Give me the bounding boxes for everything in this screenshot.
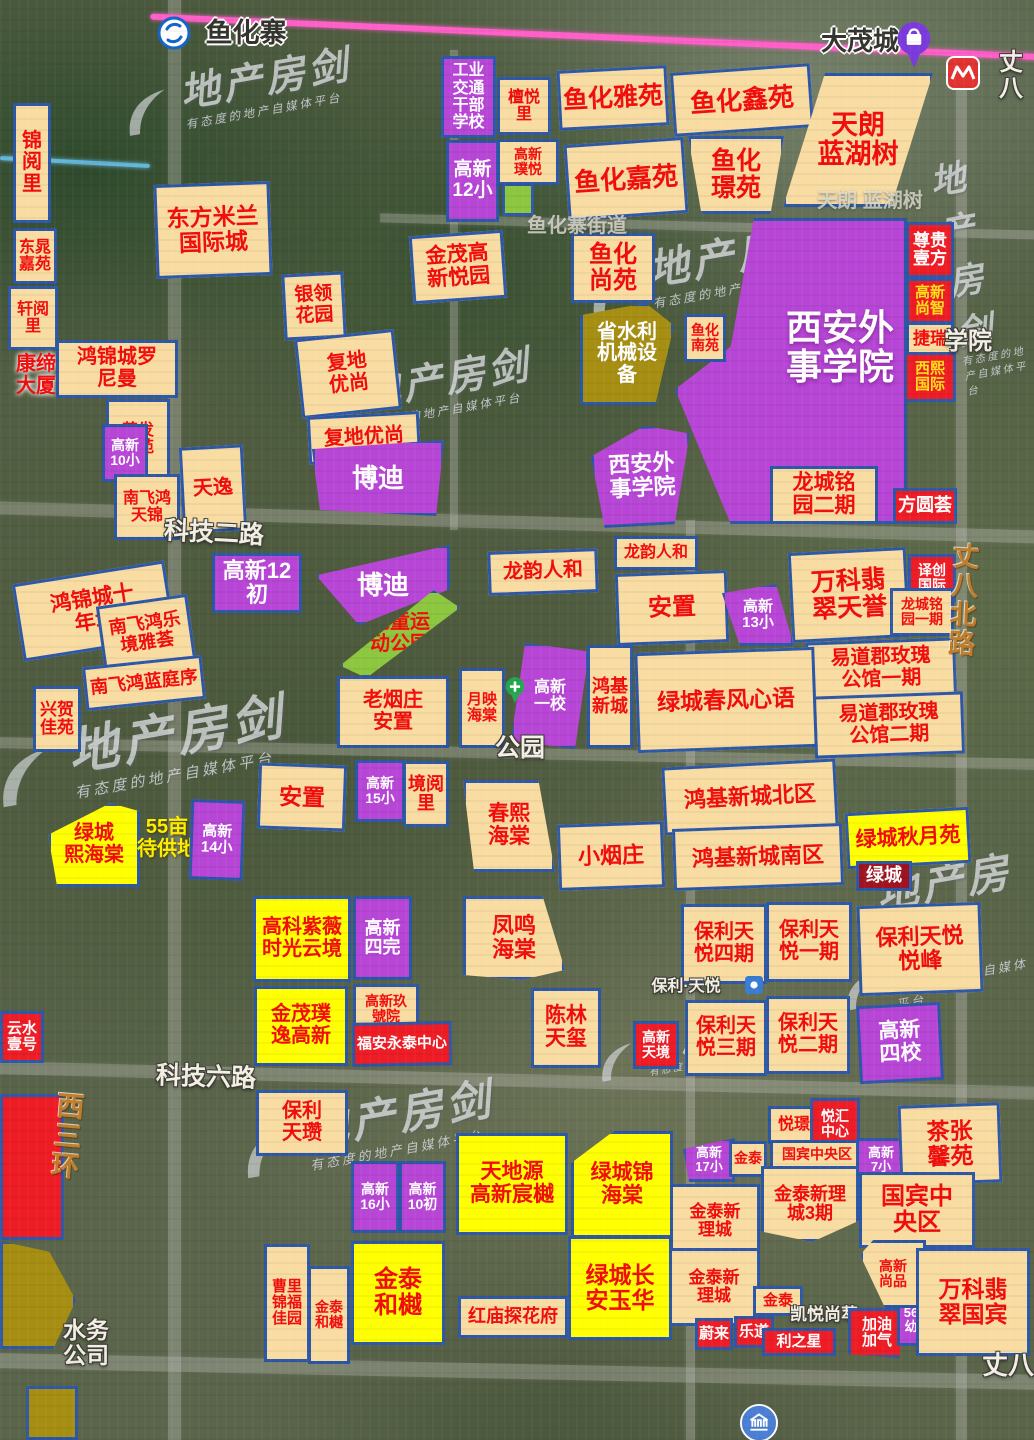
- label-text: 鱼化寨街道: [527, 216, 627, 238]
- label-text: 鱼化寨: [206, 19, 287, 48]
- map-parcel: 老烟庄 安置: [337, 676, 449, 748]
- map-parcel: 高新 15小: [355, 760, 405, 822]
- map-parcel: 鱼化 璟苑: [688, 136, 784, 214]
- map-label: 学院: [940, 328, 996, 356]
- map-parcel: 国宾中 央区: [859, 1172, 975, 1248]
- park-parcel: [502, 183, 534, 216]
- label-text: 高新 一校: [534, 679, 566, 714]
- map-parcel: 保利天 悦三期: [685, 1000, 767, 1076]
- label-text: 高新12初: [215, 559, 299, 607]
- label-text: 曹里 锦福 佳园: [272, 1279, 302, 1328]
- label-text: 金泰 和樾: [315, 1300, 343, 1330]
- label-text: 绿城春风心语: [657, 685, 796, 715]
- label-text: 凯悦尚萃: [790, 1306, 858, 1324]
- map-parcel: 金茂高 新悦园: [409, 230, 508, 304]
- map-parcel: 境阅 里: [403, 761, 449, 827]
- map-parcel: 绿城春风心语: [634, 647, 817, 753]
- label-text: 儿童运 动公园: [370, 612, 430, 655]
- map-parcel: 福安永泰中心: [352, 1021, 453, 1067]
- label-text: 鱼化 尚苑: [589, 242, 637, 294]
- label-text: 丈 八 北 路: [947, 542, 980, 660]
- map-parcel: 博迪: [312, 440, 444, 516]
- label-text: 鸿基新城北区: [683, 782, 816, 813]
- map-parcel: 高新 璞悦: [497, 139, 559, 185]
- label-text: 悦汇 中心: [821, 1109, 849, 1139]
- station-label: 鱼化寨: [196, 18, 296, 50]
- label-text: 南飞鸿乐 境雅荟: [108, 609, 185, 658]
- label-text: 高新 尚品: [879, 1259, 907, 1289]
- label-text: 金泰新理 城3期: [774, 1185, 846, 1224]
- label-text: 大茂城: [821, 27, 899, 55]
- map-parcel: 鸿基新城南区: [672, 823, 844, 891]
- map-parcel: 方圆荟: [893, 488, 957, 524]
- map-parcel: 金泰 和樾: [308, 1266, 350, 1364]
- map-parcel: 金泰新理 城3期: [761, 1166, 859, 1242]
- label-text: 绿城锦 海棠: [591, 1162, 654, 1207]
- label-text: 学院: [944, 329, 992, 355]
- label-text: 加油 加气: [862, 1317, 892, 1349]
- map-parcel: 龙韵人和: [487, 548, 598, 596]
- map-parcel: 鱼化鑫苑: [670, 63, 814, 137]
- map-parcel: 锦 阅 里: [13, 103, 51, 223]
- label-text: 万科翡 翠天誉: [810, 566, 888, 624]
- map-parcel: 保利天 悦四期: [681, 904, 767, 984]
- map-parcel: 高新 16小: [351, 1161, 399, 1233]
- map-parcel: 国宾中央区: [770, 1140, 864, 1170]
- street-label: 科技六路: [140, 1060, 273, 1095]
- map-parcel: 小烟庄: [557, 821, 665, 891]
- label-text: 高新 10小: [110, 438, 140, 468]
- label-text: 高新 15小: [365, 776, 395, 806]
- map-label: 西安外 事学院: [770, 300, 910, 395]
- label-text: 水务 公司: [63, 1318, 109, 1368]
- map-parcel: 高新 13小: [722, 584, 794, 646]
- label-text: 小烟庄: [578, 843, 645, 869]
- map-parcel: 鱼化 南苑: [684, 314, 726, 362]
- label-text: 55亩 待供地: [137, 817, 197, 860]
- label-text: 保利·天悦: [651, 978, 720, 995]
- label-text: 西 三 环: [50, 1091, 86, 1184]
- map-parcel: 鱼化嘉苑: [563, 137, 688, 221]
- map-parcel: 鱼化 尚苑: [571, 233, 655, 303]
- map-parcel: 檀悦 里: [497, 77, 551, 135]
- map-parcel: 保利天 悦二期: [766, 996, 850, 1074]
- label-text: 高新 10初: [408, 1182, 438, 1212]
- building-pin-icon: [740, 1404, 778, 1440]
- label-text: 云水 壹号: [7, 1021, 37, 1053]
- label-text: 科技二路: [163, 517, 264, 549]
- label-text: 银领 花园: [294, 285, 334, 328]
- label-text: 南飞鸿蓝庭序: [89, 668, 198, 699]
- label-text: 福安永泰中心: [357, 1035, 447, 1053]
- label-text: 天朗 蓝湖树: [817, 191, 923, 213]
- label-text: 高新 四校: [878, 1019, 922, 1066]
- map-parcel: 银领 花园: [281, 271, 346, 340]
- map-parcel: 红庙探花府: [458, 1296, 568, 1338]
- map-parcel: 金泰 和樾: [351, 1241, 445, 1345]
- map-parcel: 利之星: [762, 1328, 836, 1356]
- label-text: 保利天 悦一期: [779, 920, 839, 963]
- street-label: 丈八: [982, 1350, 1034, 1380]
- label-text: 鱼化鑫苑: [689, 82, 795, 117]
- label-text: 绿城秋月苑: [855, 824, 961, 852]
- map-parcel: 蔚来: [695, 1318, 733, 1350]
- label-text: 康缔 大厦: [16, 354, 56, 397]
- map-parcel: 高新 14小: [189, 799, 246, 881]
- label-text: 高新玖 號院: [365, 994, 407, 1024]
- label-text: 红庙探花府: [468, 1307, 558, 1326]
- map-parcel: 凤鸣 海棠: [463, 896, 565, 980]
- label-text: 东晁 嘉苑: [19, 239, 51, 274]
- label-text: 安置: [279, 784, 326, 810]
- map-label: 水务 公司: [44, 1314, 128, 1372]
- label-text: 金茂璞 逸高新: [271, 1004, 331, 1047]
- label-text: 鸿基新城南区: [692, 843, 825, 871]
- label-text: 悦璟: [778, 1116, 810, 1133]
- label-text: 利之星: [776, 1334, 821, 1350]
- label-text: 保利天悦 悦峰: [875, 924, 965, 975]
- map-parcel: 绿城长 安玉华: [568, 1236, 672, 1340]
- map-parcel: 复地 优尚: [294, 329, 402, 419]
- label-text: 陈林 天玺: [545, 1005, 587, 1050]
- label-text: 公园: [495, 735, 545, 762]
- map-parcel: 保利天悦 悦峰: [856, 902, 983, 996]
- label-text: 鸿基 新城: [592, 677, 628, 716]
- map-parcel: 西熙 国际: [904, 352, 956, 402]
- map-parcel: 高科紫薇 时光云境: [253, 896, 351, 982]
- poi-icon: [745, 976, 763, 994]
- map-parcel: 东方米兰 国际城: [153, 181, 272, 279]
- map-parcel: 高新 四完: [353, 896, 412, 980]
- map-label: 鱼化寨街道: [502, 214, 652, 240]
- label-text: 天朗 蓝湖树: [818, 111, 899, 169]
- label-text: 丈八: [982, 1351, 1034, 1379]
- label-text: 博迪: [352, 464, 404, 492]
- map-parcel: 保利 天瓒: [256, 1090, 348, 1156]
- label-text: 月映 海棠: [467, 692, 497, 724]
- station-label: 大茂城: [816, 26, 904, 56]
- road: [0, 1353, 1034, 1391]
- label-text: 锦 阅 里: [22, 131, 42, 196]
- label-text: 蔚来: [699, 1326, 729, 1342]
- map-parcel: 尊贵 壹方: [906, 222, 954, 278]
- label-text: 高新 天境: [642, 1030, 670, 1060]
- map-parcel: 高新 12小: [446, 140, 499, 222]
- map-parcel: 绿城 熙海棠: [48, 803, 140, 887]
- label-text: 鸿锦城罗 尼曼: [77, 347, 157, 390]
- label-text: 龙城铭 园一期: [901, 597, 943, 627]
- station-label: 丈八: [988, 62, 1034, 90]
- label-text: 高新 7小: [868, 1146, 894, 1174]
- label-text: 保利天 悦二期: [778, 1013, 838, 1056]
- label-text: 丈八: [988, 50, 1034, 102]
- label-text: 西熙 国际: [915, 361, 945, 393]
- label-text: 金泰新 理城: [690, 1203, 741, 1240]
- label-text: 龙城铭 园二期: [793, 472, 856, 517]
- label-text: 兴贺 佳苑: [40, 701, 74, 738]
- label-text: 绿城: [866, 866, 902, 885]
- label-text: 轩阅里: [11, 301, 55, 336]
- map-parcel: 金茂璞 逸高新: [254, 986, 348, 1066]
- map-parcel: 高新 尚智: [906, 278, 954, 324]
- label-text: 工业 交通 干部 学校: [452, 62, 484, 131]
- label-text: 龙韵人和: [624, 544, 688, 561]
- label-text: 金茂高 新悦园: [425, 242, 491, 292]
- map-parcel: 易道郡玫瑰 公馆二期: [813, 691, 965, 758]
- label-text: 易道郡玫瑰 公馆二期: [838, 702, 939, 749]
- metro-roundel-icon: [157, 16, 191, 50]
- label-text: 国宾中央区: [782, 1147, 852, 1162]
- label-text: 方圆荟: [898, 496, 952, 515]
- label-text: 天地源 高新宸樾: [470, 1161, 554, 1206]
- label-text: 高新 四完: [365, 919, 401, 958]
- map-parcel: 鸿锦城罗 尼曼: [56, 340, 178, 398]
- label-text: 高新 尚智: [915, 285, 945, 317]
- label-text: 高新 16小: [360, 1182, 390, 1212]
- label-text: 檀悦 里: [508, 89, 540, 124]
- street-label: 西 三 环: [43, 1080, 92, 1193]
- map-parcel: 工业 交通 干部 学校: [441, 56, 496, 138]
- street-label: 丈 八 北 路: [942, 525, 986, 677]
- map-parcel: 绿城锦 海棠: [571, 1131, 673, 1238]
- map-parcel: 兴贺 佳苑: [33, 686, 81, 752]
- label-text: 易道郡玫瑰 公馆一期: [830, 646, 931, 693]
- label-text: 国宾中 央区: [881, 1184, 953, 1236]
- label-text: 保利天 悦四期: [694, 922, 754, 965]
- map-parcel: 西安外 事学院: [589, 423, 694, 528]
- map-parcel: 安置: [257, 762, 347, 831]
- map-parcel: 绿城: [856, 861, 912, 891]
- map-parcel: 龙城铭 园二期: [770, 466, 878, 524]
- label-text: 凤鸣 海棠: [492, 914, 536, 962]
- label-text: 西安外 事学院: [786, 309, 894, 387]
- label-text: 高新 14小: [201, 823, 234, 856]
- map-canvas: 地产房剑有态度的地产自媒体平台地产房剑有态度的地产自媒体平台地产房剑有态度的地产…: [0, 0, 1034, 1440]
- label-text: 万科翡 翠国宾: [939, 1277, 1008, 1327]
- map-parcel: 曹里 锦福 佳园: [264, 1244, 310, 1362]
- map-label: 天朗 蓝湖树: [790, 190, 950, 214]
- label-text: 高新 13小: [742, 599, 774, 631]
- label-text: 天逸: [192, 477, 233, 501]
- label-text: 西安外 事学院: [608, 451, 676, 502]
- map-parcel: 轩阅里: [8, 286, 58, 350]
- label-text: 金泰 和樾: [374, 1267, 422, 1319]
- map-parcel: 保利天 悦一期: [766, 902, 852, 982]
- map-parcel: 绿城秋月苑: [845, 807, 972, 869]
- map-parcel: 云水 壹号: [0, 1011, 44, 1063]
- park-pin-icon: [504, 676, 526, 704]
- label-text: 东方米兰 国际城: [166, 204, 260, 257]
- label-text: 复地 优尚: [326, 350, 370, 397]
- map-parcel: 高新 10初: [399, 1161, 446, 1233]
- label-text: 省水利 机械设 备: [597, 322, 657, 387]
- label-text: 鱼化 南苑: [691, 323, 719, 353]
- map-parcel: 南飞鸿蓝庭序: [82, 655, 206, 711]
- label-text: 高科紫薇 时光云境: [262, 917, 342, 960]
- label-text: 保利 天瓒: [282, 1101, 322, 1144]
- label-text: 金泰: [734, 1151, 762, 1166]
- label-text: 高新 璞悦: [514, 147, 542, 177]
- map-parcel: 高新 四校: [856, 1002, 944, 1084]
- label-text: 金泰新 理城: [689, 1269, 740, 1306]
- map-parcel: 高新 天境: [633, 1021, 679, 1069]
- map-parcel: 高新12初: [212, 553, 302, 613]
- map-parcel: 陈林 天玺: [531, 988, 601, 1068]
- label-text: 绿城长 安玉华: [586, 1263, 655, 1313]
- label-text: 春熙 海棠: [488, 803, 530, 848]
- label-text: 鱼化嘉苑: [573, 161, 679, 196]
- map-parcel: 春熙 海棠: [463, 780, 555, 872]
- label-text: 安置: [648, 594, 697, 622]
- label-text: 尊贵 壹方: [913, 232, 947, 269]
- label-text: 茶张 馨苑: [926, 1118, 974, 1169]
- map-parcel: 省水利 机械设 备: [580, 303, 674, 405]
- map-parcel: 万科翡 翠国宾: [916, 1248, 1030, 1356]
- label-text: 高新 17小: [695, 1146, 722, 1174]
- mall-pin-icon: [894, 20, 934, 68]
- label-text: 境阅 里: [408, 775, 444, 814]
- label-text: 科技六路: [156, 1062, 257, 1092]
- watermark-subtext: 有态度的地产自媒体平台: [184, 88, 343, 132]
- map-label: 保利·天悦: [630, 976, 742, 998]
- map-parcel: 天地源 高新宸樾: [456, 1133, 568, 1235]
- map-parcel: 东晁 嘉苑: [13, 228, 57, 284]
- metro-badge-icon: [946, 56, 980, 90]
- label-text: 老烟庄 安置: [363, 690, 423, 733]
- map-parcel: 金泰新 理城: [670, 1184, 760, 1258]
- map-parcel: 易道郡玫瑰 公馆一期: [805, 637, 957, 700]
- olive-parcel: [26, 1386, 78, 1440]
- map-parcel: 龙韵人和: [614, 536, 698, 570]
- map-parcel: 金泰新 理城: [668, 1248, 760, 1326]
- label-text: 鱼化 璟苑: [711, 148, 761, 202]
- label-text: 绿城 熙海棠: [64, 823, 124, 866]
- label-text: 博迪: [357, 571, 409, 599]
- map-parcel: 鸿基 新城: [587, 645, 633, 748]
- label-text: 龙韵人和: [503, 560, 584, 584]
- map-parcel: 安置: [615, 570, 729, 646]
- map-parcel: 鱼化雅苑: [557, 65, 670, 131]
- label-text: 保利天 悦三期: [696, 1016, 756, 1059]
- label-text: 高新 12小: [452, 160, 492, 201]
- map-label: 公园: [470, 734, 570, 762]
- label-text: 鱼化雅苑: [562, 82, 663, 114]
